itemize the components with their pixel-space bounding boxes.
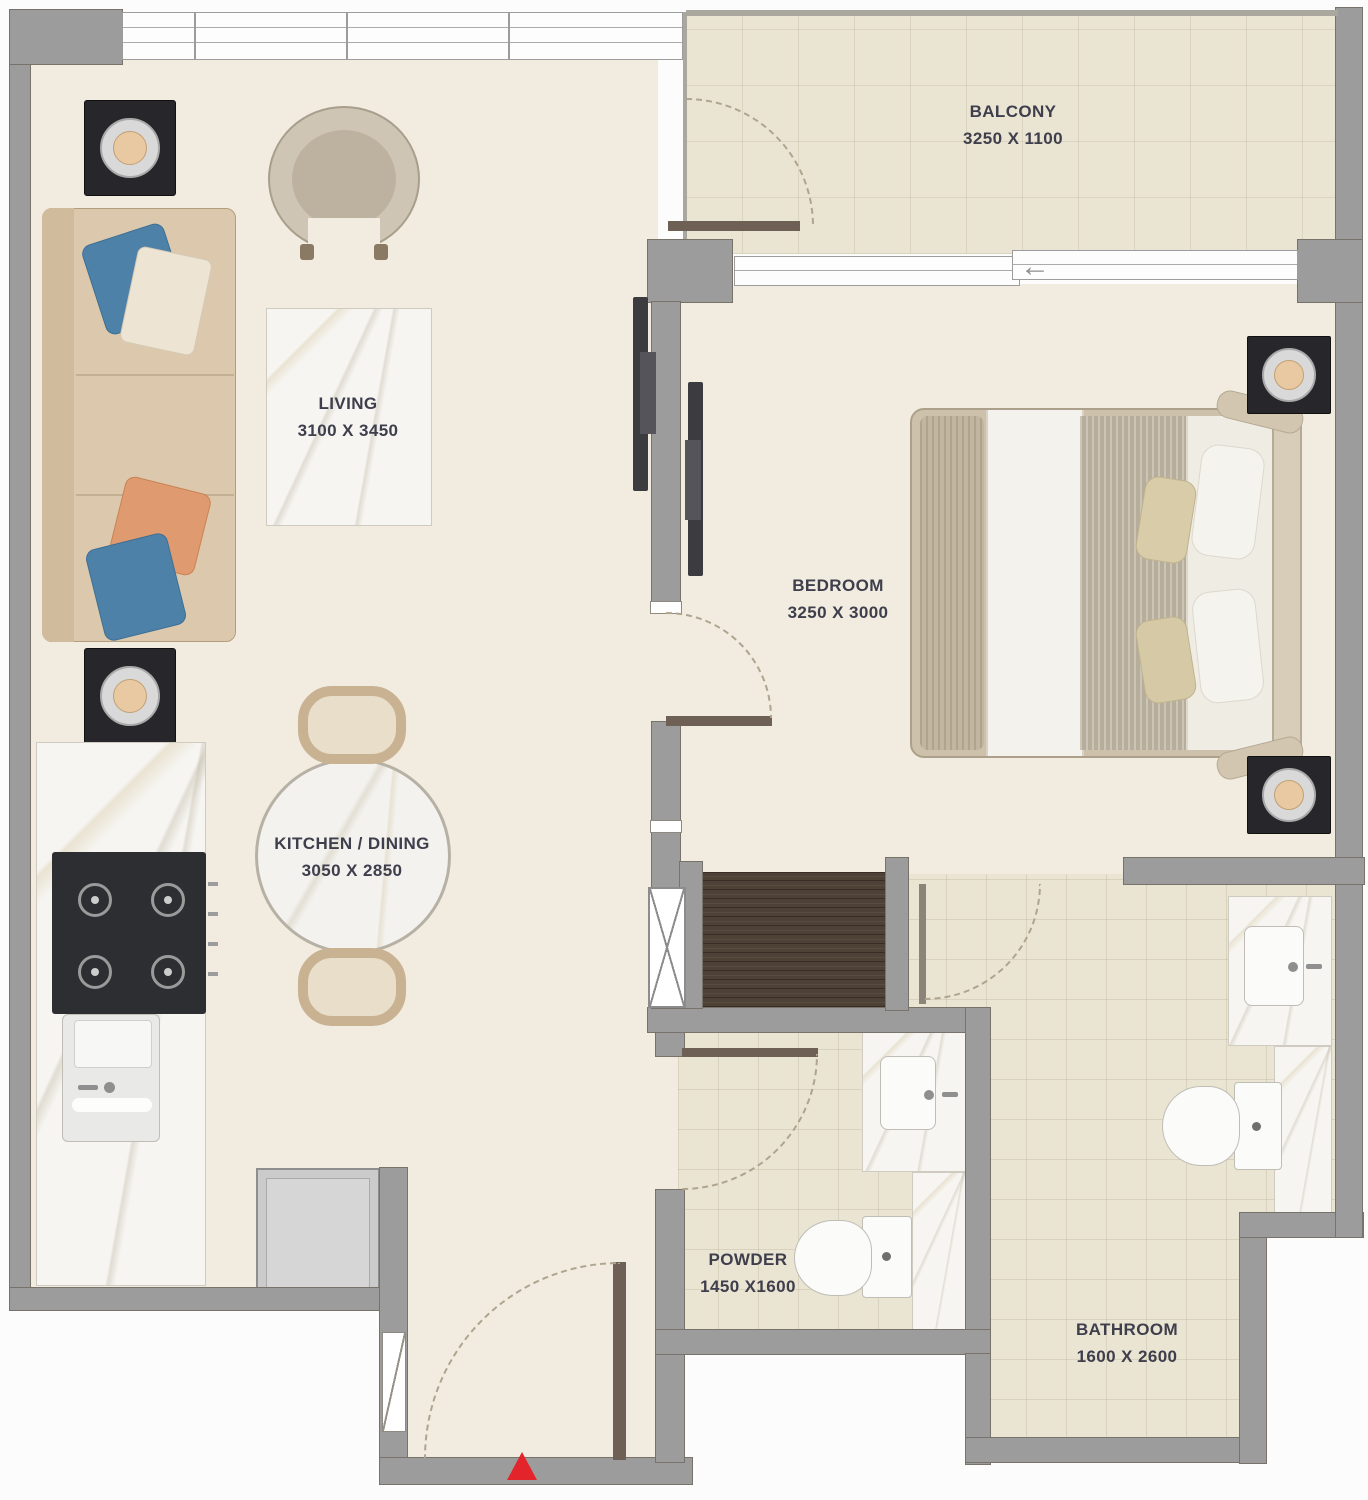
sofa-cushion-seam xyxy=(76,374,234,376)
wall-powder-bottom xyxy=(656,1330,990,1354)
room-label-bathroom: BATHROOM 1600 X 2600 xyxy=(1027,1316,1227,1370)
stove-burner-center xyxy=(164,968,172,976)
dining-chair xyxy=(298,948,406,1026)
wall-kitchen-bottom xyxy=(10,1288,382,1310)
faucet-icon xyxy=(104,1082,115,1093)
stove-knob xyxy=(208,882,218,886)
stove-knob xyxy=(208,912,218,916)
window-glass-line xyxy=(1013,264,1297,265)
wall-corridor-right xyxy=(656,1190,684,1462)
wall-powder-right xyxy=(966,1008,990,1354)
wall-bathroom-right-lower xyxy=(1240,1213,1266,1463)
table-lamp-shade xyxy=(113,679,147,713)
bathroom-vanity-strip xyxy=(1274,1046,1332,1216)
tv-living-mount xyxy=(640,352,656,434)
outside-area xyxy=(1264,1237,1368,1467)
room-dimensions: 3250 X 3000 xyxy=(738,599,938,626)
room-name: BALCONY xyxy=(913,98,1113,125)
table-lamp-shade xyxy=(1274,780,1304,810)
window-glass-line xyxy=(123,27,682,28)
faucet-handle xyxy=(78,1085,98,1090)
stove-burner-center xyxy=(164,896,172,904)
stove-knob xyxy=(208,972,218,976)
bed-headboard xyxy=(1272,390,1302,776)
tv-bedroom-mount xyxy=(685,440,701,520)
window-bedroom-left-panel xyxy=(734,256,1020,286)
bed-pillow xyxy=(1190,587,1265,705)
room-label-bedroom: BEDROOM 3250 X 3000 xyxy=(738,572,938,626)
table-lamp-shade xyxy=(1274,360,1304,390)
service-shaft xyxy=(648,887,686,1008)
wall-niche xyxy=(382,1332,406,1432)
wall-bedroom-top-block-left xyxy=(648,240,732,302)
wall-left-outer xyxy=(10,28,30,1310)
window-mullion xyxy=(346,13,348,59)
room-dimensions: 3100 X 3450 xyxy=(258,417,438,444)
room-label-living: LIVING 3100 X 3450 xyxy=(258,390,438,444)
room-name: BATHROOM xyxy=(1027,1316,1227,1343)
wall-living-bedroom-upper xyxy=(652,302,680,612)
stove-knob xyxy=(208,942,218,946)
direction-arrow-icon: ← xyxy=(1020,252,1050,282)
window-bedroom-right-panel xyxy=(1012,250,1298,280)
entrance-marker-icon xyxy=(507,1452,537,1480)
outside-area xyxy=(684,1354,968,1460)
faucet-icon xyxy=(1288,962,1298,972)
kitchen-sink-ledge xyxy=(72,1098,152,1112)
wardrobe xyxy=(700,872,888,1008)
room-dimensions: 1600 X 2600 xyxy=(1027,1343,1227,1370)
wall-wardrobe-right-sliver xyxy=(886,858,908,1010)
room-dimensions: 3250 X 1100 xyxy=(913,125,1113,152)
wall-bathroom-bottom xyxy=(966,1438,1266,1462)
powder-vanity-strip xyxy=(912,1172,966,1330)
kitchen-sink-basin xyxy=(74,1020,152,1068)
armchair-opening xyxy=(308,218,380,254)
floor-plan: ← LIVING 3100 X 3450 KITCHEN / DINING 30… xyxy=(0,0,1368,1500)
wall-top-left-column xyxy=(10,10,122,64)
window-mullion xyxy=(194,13,196,59)
faucet-handle xyxy=(1306,964,1322,969)
door-stop xyxy=(650,820,682,833)
wall-bedroom-top-block-right xyxy=(1298,240,1362,302)
window-living-top xyxy=(122,12,683,60)
cooktop xyxy=(52,852,206,1014)
room-label-powder: POWDER 1450 X1600 xyxy=(663,1246,833,1300)
wall-bedroom-bottom-right xyxy=(1124,858,1364,884)
room-name: KITCHEN / DINING xyxy=(242,830,462,857)
window-glass-line xyxy=(735,270,1019,271)
bed-runner xyxy=(986,410,1084,756)
room-dimensions: 3050 X 2850 xyxy=(242,857,462,884)
wall-powder-top xyxy=(648,1008,968,1032)
room-dimensions: 1450 X1600 xyxy=(663,1273,833,1300)
armchair-seat xyxy=(292,130,396,228)
bed-pillow xyxy=(1189,443,1266,562)
faucet-icon xyxy=(924,1090,934,1100)
toilet-flush-button xyxy=(1252,1122,1261,1131)
toilet-flush-button xyxy=(882,1252,891,1261)
room-name: LIVING xyxy=(258,390,438,417)
stove-burner-center xyxy=(91,968,99,976)
faucet-handle xyxy=(942,1092,958,1097)
window-mullion xyxy=(508,13,510,59)
table-lamp-shade xyxy=(113,131,147,165)
bathroom-toilet-bowl xyxy=(1162,1086,1240,1166)
wall-right-outer xyxy=(1336,8,1362,1237)
dining-chair xyxy=(298,686,406,764)
room-label-balcony: BALCONY 3250 X 1100 xyxy=(913,98,1113,152)
room-name: POWDER xyxy=(663,1246,833,1273)
refrigerator-inner xyxy=(266,1178,370,1288)
wall-balcony-top xyxy=(686,10,1338,16)
sofa-backrest xyxy=(42,208,74,642)
armchair-leg xyxy=(374,244,388,260)
armchair-leg xyxy=(300,244,314,260)
room-name: BEDROOM xyxy=(738,572,938,599)
window-glass-line xyxy=(123,42,682,43)
stove-burner-center xyxy=(91,896,99,904)
room-label-kitchen-dining: KITCHEN / DINING 3050 X 2850 xyxy=(242,830,462,884)
